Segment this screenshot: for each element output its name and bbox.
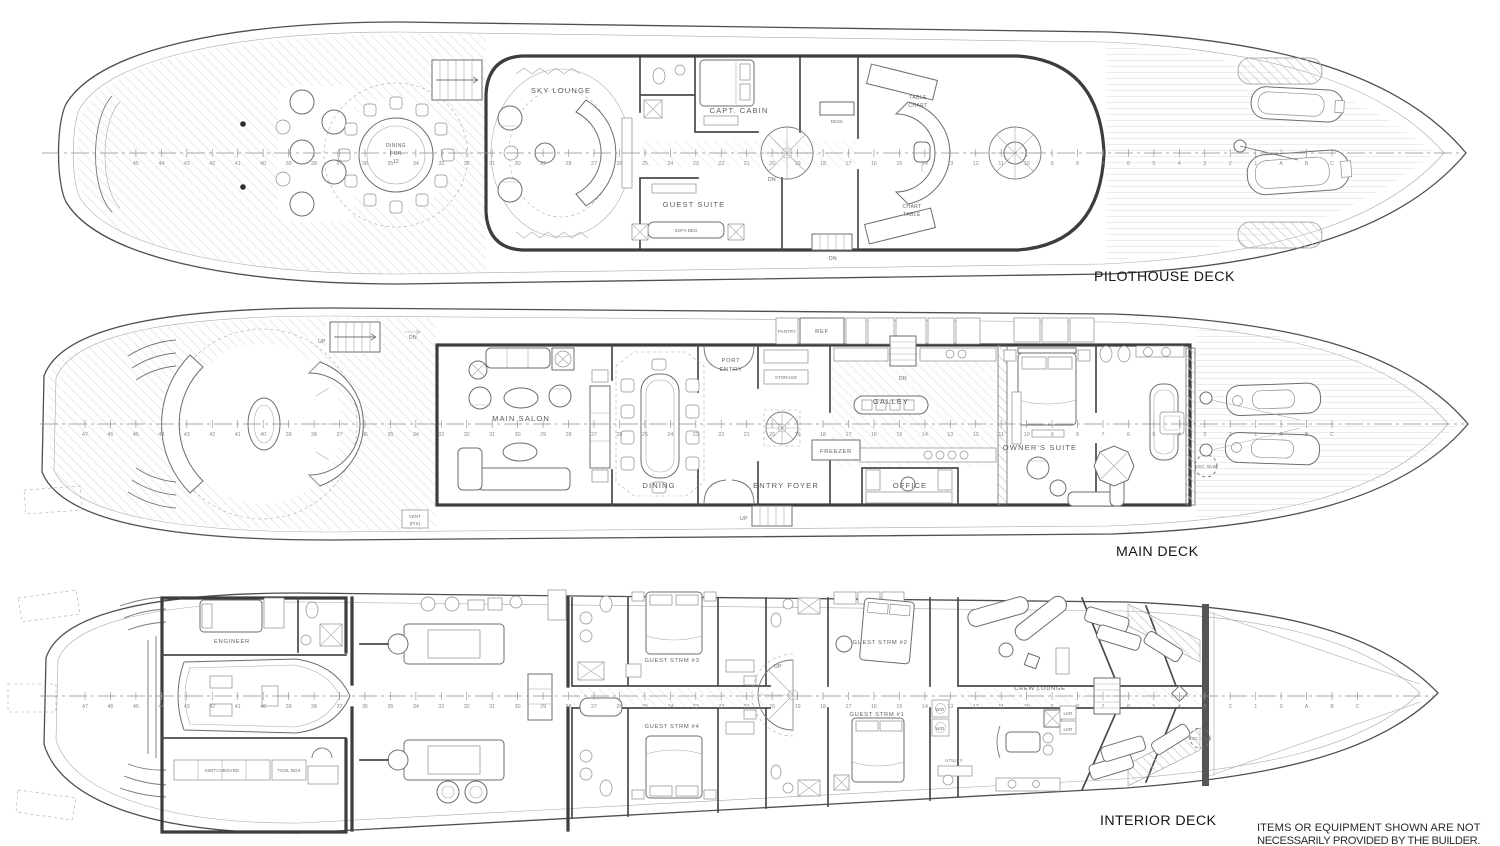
sunpad-starboard bbox=[1238, 222, 1322, 248]
svg-text:22: 22 bbox=[718, 161, 724, 167]
svg-text:27: 27 bbox=[591, 432, 597, 438]
svg-text:2: 2 bbox=[1229, 704, 1232, 710]
label-sofa-bed: SOFA BED bbox=[675, 228, 698, 233]
svg-text:28: 28 bbox=[566, 704, 572, 710]
svg-text:9: 9 bbox=[1051, 432, 1054, 438]
svg-text:0: 0 bbox=[1280, 704, 1283, 710]
svg-text:14: 14 bbox=[922, 432, 928, 438]
svg-text:1: 1 bbox=[1254, 704, 1257, 710]
room-label-dining12: 12 bbox=[393, 159, 399, 165]
room-label-port-entry: ENTRY bbox=[719, 367, 742, 373]
builder-disclaimer-line1: ITEMS OR EQUIPMENT SHOWN ARE NOT bbox=[1257, 822, 1481, 834]
svg-text:19: 19 bbox=[795, 432, 801, 438]
svg-text:38: 38 bbox=[311, 704, 317, 710]
svg-text:11: 11 bbox=[998, 432, 1004, 438]
room-label-crew-lounge: CREW LOUNGE bbox=[1014, 686, 1066, 692]
room-label-main-salon: MAIN SALON bbox=[492, 414, 550, 423]
svg-text:13: 13 bbox=[947, 161, 953, 167]
svg-text:34: 34 bbox=[413, 161, 419, 167]
svg-text:9: 9 bbox=[1051, 704, 1054, 710]
svg-text:47: 47 bbox=[82, 704, 88, 710]
svg-text:13: 13 bbox=[947, 432, 953, 438]
svg-text:41: 41 bbox=[235, 432, 241, 438]
svg-text:45: 45 bbox=[133, 432, 139, 438]
svg-text:30: 30 bbox=[515, 704, 521, 710]
svg-text:38: 38 bbox=[311, 161, 317, 167]
svg-text:23: 23 bbox=[693, 704, 699, 710]
svg-text:39: 39 bbox=[286, 161, 292, 167]
room-label-capt-cabin: CAPT. CABIN bbox=[710, 106, 769, 115]
label-lkr: LKR bbox=[1064, 727, 1073, 732]
svg-text:B: B bbox=[1330, 704, 1334, 710]
svg-text:6: 6 bbox=[1127, 432, 1130, 438]
svg-text:39: 39 bbox=[286, 432, 292, 438]
svg-text:29: 29 bbox=[540, 161, 546, 167]
svg-text:16: 16 bbox=[871, 432, 877, 438]
svg-text:43: 43 bbox=[184, 161, 190, 167]
label-dn: DN bbox=[899, 376, 907, 382]
room-label-galley: GALLEY bbox=[873, 397, 909, 406]
room-label-entry-foyer: ENTRY FOYER bbox=[753, 481, 819, 490]
svg-text:26: 26 bbox=[616, 704, 622, 710]
room-label-sky-lounge: SKY LOUNGE bbox=[531, 86, 591, 95]
svg-text:21: 21 bbox=[744, 704, 750, 710]
svg-text:42: 42 bbox=[209, 704, 215, 710]
svg-text:23: 23 bbox=[693, 161, 699, 167]
deck-title-main: MAIN DECK bbox=[1116, 544, 1199, 560]
svg-text:7: 7 bbox=[1102, 161, 1105, 167]
svg-text:12: 12 bbox=[973, 704, 979, 710]
label-esc-blw: ESC. BLW bbox=[1195, 464, 1218, 469]
label-lkr: LKR bbox=[1064, 711, 1073, 716]
label-dn: DN bbox=[829, 256, 837, 262]
svg-text:36: 36 bbox=[362, 161, 368, 167]
label-chart-table: TABLE bbox=[903, 212, 921, 218]
svg-text:8: 8 bbox=[1076, 704, 1079, 710]
svg-text:A: A bbox=[1279, 161, 1283, 167]
svg-text:33: 33 bbox=[438, 161, 444, 167]
svg-text:15: 15 bbox=[896, 432, 902, 438]
svg-text:13: 13 bbox=[947, 704, 953, 710]
room-label-office: OFFICE bbox=[893, 481, 927, 490]
svg-text:34: 34 bbox=[413, 704, 419, 710]
label-vent: VENT bbox=[409, 514, 421, 519]
svg-text:32: 32 bbox=[464, 161, 470, 167]
label-vent: (P/S) bbox=[410, 521, 421, 526]
svg-text:37: 37 bbox=[337, 704, 343, 710]
svg-text:20: 20 bbox=[769, 704, 775, 710]
svg-text:8: 8 bbox=[1076, 161, 1079, 167]
svg-text:14: 14 bbox=[922, 161, 928, 167]
svg-text:44: 44 bbox=[158, 161, 164, 167]
svg-text:11: 11 bbox=[998, 161, 1004, 167]
svg-text:23: 23 bbox=[693, 432, 699, 438]
interior-deck-plan: 4746454443424140393837363534333231302928… bbox=[8, 590, 1438, 833]
label-pantry: PANTRY bbox=[778, 329, 796, 334]
svg-text:2: 2 bbox=[1229, 161, 1232, 167]
svg-text:1: 1 bbox=[1254, 432, 1257, 438]
svg-text:36: 36 bbox=[362, 704, 368, 710]
jet-ski bbox=[1226, 383, 1321, 416]
svg-text:12: 12 bbox=[973, 161, 979, 167]
svg-text:16: 16 bbox=[871, 161, 877, 167]
svg-text:37: 37 bbox=[337, 432, 343, 438]
label-dn: DN bbox=[409, 335, 417, 341]
svg-text:27: 27 bbox=[591, 161, 597, 167]
svg-text:7: 7 bbox=[1102, 704, 1105, 710]
label-wd: W/D bbox=[936, 707, 945, 712]
svg-text:44: 44 bbox=[158, 704, 164, 710]
label-wd: W/D bbox=[936, 726, 945, 731]
svg-text:3: 3 bbox=[1203, 161, 1206, 167]
svg-text:24: 24 bbox=[667, 432, 673, 438]
svg-text:41: 41 bbox=[235, 704, 241, 710]
svg-text:18: 18 bbox=[820, 161, 826, 167]
svg-text:45: 45 bbox=[133, 704, 139, 710]
room-label-guest-strm-4: GUEST STRM #4 bbox=[644, 724, 699, 730]
svg-text:12: 12 bbox=[973, 432, 979, 438]
svg-text:1: 1 bbox=[1254, 161, 1257, 167]
room-label-engineer: ENGINEER bbox=[214, 639, 250, 645]
svg-text:10: 10 bbox=[1024, 432, 1030, 438]
svg-text:5: 5 bbox=[1152, 161, 1155, 167]
svg-text:34: 34 bbox=[413, 432, 419, 438]
svg-text:5: 5 bbox=[1152, 704, 1155, 710]
svg-text:31: 31 bbox=[489, 432, 495, 438]
svg-text:26: 26 bbox=[616, 161, 622, 167]
label-tool-box: TOOL BOX bbox=[277, 768, 300, 773]
svg-text:8: 8 bbox=[1076, 432, 1079, 438]
svg-text:42: 42 bbox=[209, 432, 215, 438]
svg-text:18: 18 bbox=[820, 704, 826, 710]
svg-text:11: 11 bbox=[998, 704, 1004, 710]
svg-text:40: 40 bbox=[260, 704, 266, 710]
svg-text:40: 40 bbox=[260, 161, 266, 167]
label-utility: UTILITY bbox=[945, 758, 962, 763]
svg-text:30: 30 bbox=[515, 432, 521, 438]
svg-text:3: 3 bbox=[1203, 704, 1206, 710]
svg-text:10: 10 bbox=[1024, 161, 1030, 167]
room-label-guest-strm-3: GUEST STRM #3 bbox=[644, 658, 699, 664]
label-up: UP bbox=[740, 516, 748, 522]
svg-text:25: 25 bbox=[642, 161, 648, 167]
svg-text:B: B bbox=[1305, 161, 1309, 167]
svg-text:25: 25 bbox=[642, 432, 648, 438]
svg-text:27: 27 bbox=[591, 704, 597, 710]
room-label-guest-strm-2: GUEST STRM #2 bbox=[852, 640, 907, 646]
forward-bulkhead bbox=[1202, 604, 1209, 786]
svg-text:17: 17 bbox=[846, 161, 852, 167]
svg-text:39: 39 bbox=[286, 704, 292, 710]
svg-text:19: 19 bbox=[795, 161, 801, 167]
svg-text:31: 31 bbox=[489, 161, 495, 167]
svg-text:40: 40 bbox=[260, 432, 266, 438]
svg-text:30: 30 bbox=[515, 161, 521, 167]
svg-text:24: 24 bbox=[667, 161, 673, 167]
yacht-deck-plans-canvas: 4544434241403938373635343332313029282726… bbox=[0, 0, 1500, 846]
label-up: UP bbox=[318, 339, 326, 345]
svg-text:C: C bbox=[1356, 704, 1360, 710]
svg-text:35: 35 bbox=[387, 704, 393, 710]
svg-text:42: 42 bbox=[209, 161, 215, 167]
svg-text:33: 33 bbox=[438, 704, 444, 710]
main-deck-plan: 4746454443424140393837363534333231302928… bbox=[24, 308, 1468, 560]
svg-text:28: 28 bbox=[566, 432, 572, 438]
svg-text:45: 45 bbox=[133, 161, 139, 167]
svg-text:46: 46 bbox=[107, 432, 113, 438]
svg-text:47: 47 bbox=[82, 432, 88, 438]
svg-text:A: A bbox=[1305, 704, 1309, 710]
svg-text:33: 33 bbox=[438, 432, 444, 438]
label-esc-ovr: ESC. OVR bbox=[1189, 736, 1211, 741]
deck-title-pilothouse: PILOTHOUSE DECK bbox=[1094, 269, 1235, 285]
svg-text:9: 9 bbox=[1051, 161, 1054, 167]
svg-text:16: 16 bbox=[871, 704, 877, 710]
svg-text:21: 21 bbox=[744, 161, 750, 167]
svg-text:4: 4 bbox=[1178, 161, 1181, 167]
svg-text:15: 15 bbox=[896, 161, 902, 167]
svg-text:19: 19 bbox=[795, 704, 801, 710]
svg-text:44: 44 bbox=[158, 432, 164, 438]
svg-text:32: 32 bbox=[464, 432, 470, 438]
aft-stairs bbox=[432, 60, 482, 100]
label-switchboard: SWITCHBOARD bbox=[205, 768, 239, 773]
svg-text:32: 32 bbox=[464, 704, 470, 710]
svg-text:C: C bbox=[1330, 161, 1334, 167]
pilothouse-deck-plan: 4544434241403938373635343332313029282726… bbox=[42, 22, 1466, 285]
svg-text:A: A bbox=[1279, 432, 1283, 438]
desk bbox=[820, 102, 854, 115]
label-dn: DN bbox=[768, 177, 776, 183]
label-ref: REF bbox=[815, 329, 829, 335]
svg-text:7: 7 bbox=[1102, 432, 1105, 438]
svg-text:41: 41 bbox=[235, 161, 241, 167]
svg-text:24: 24 bbox=[667, 704, 673, 710]
svg-text:17: 17 bbox=[846, 432, 852, 438]
svg-text:36: 36 bbox=[362, 432, 368, 438]
label-desk: DESK bbox=[831, 119, 844, 124]
room-label-dining: DINING bbox=[642, 481, 675, 490]
label-table-chart: CHART bbox=[908, 103, 927, 109]
svg-text:2: 2 bbox=[1229, 432, 1232, 438]
svg-text:5: 5 bbox=[1152, 432, 1155, 438]
svg-text:43: 43 bbox=[184, 704, 190, 710]
svg-text:22: 22 bbox=[718, 704, 724, 710]
builder-disclaimer-line2: NECESSARILY PROVIDED BY THE BUILDER. bbox=[1257, 835, 1481, 846]
room-label-guest-strm-1: GUEST STRM #1 bbox=[849, 712, 904, 718]
svg-text:17: 17 bbox=[846, 704, 852, 710]
rescue-tender bbox=[1246, 149, 1353, 196]
svg-text:4: 4 bbox=[1178, 432, 1181, 438]
room-label-dining12: FOR bbox=[390, 151, 402, 157]
room-label-port-entry: PORT bbox=[722, 358, 741, 364]
svg-text:38: 38 bbox=[311, 432, 317, 438]
svg-text:6: 6 bbox=[1127, 704, 1130, 710]
room-label-dining12: DINING bbox=[386, 143, 406, 149]
svg-text:46: 46 bbox=[107, 704, 113, 710]
svg-text:22: 22 bbox=[718, 432, 724, 438]
svg-text:35: 35 bbox=[387, 432, 393, 438]
svg-text:15: 15 bbox=[896, 704, 902, 710]
svg-text:10: 10 bbox=[1024, 704, 1030, 710]
svg-text:37: 37 bbox=[337, 161, 343, 167]
svg-text:20: 20 bbox=[769, 161, 775, 167]
svg-text:C: C bbox=[1330, 432, 1334, 438]
svg-text:29: 29 bbox=[540, 432, 546, 438]
forward-stairs bbox=[812, 234, 852, 250]
svg-text:26: 26 bbox=[616, 432, 622, 438]
room-label-guest-suite: GUEST SUITE bbox=[663, 200, 726, 209]
svg-text:14: 14 bbox=[922, 704, 928, 710]
svg-text:31: 31 bbox=[489, 704, 495, 710]
tender-boat bbox=[1250, 86, 1345, 123]
svg-text:29: 29 bbox=[540, 704, 546, 710]
deck-title-interior: INTERIOR DECK bbox=[1100, 813, 1216, 829]
label-chart-table: CHART bbox=[902, 204, 921, 210]
room-label-owners-suite: OWNER'S SUITE bbox=[1003, 443, 1077, 452]
svg-text:28: 28 bbox=[566, 161, 572, 167]
svg-text:B: B bbox=[1305, 432, 1309, 438]
label-table-chart: TABLE bbox=[909, 95, 927, 101]
svg-text:21: 21 bbox=[744, 432, 750, 438]
svg-text:43: 43 bbox=[184, 432, 190, 438]
svg-text:20: 20 bbox=[769, 432, 775, 438]
svg-text:25: 25 bbox=[642, 704, 648, 710]
sunpad-port bbox=[1238, 58, 1322, 84]
svg-text:3: 3 bbox=[1203, 432, 1206, 438]
label-freezer: FREEZER bbox=[820, 449, 852, 455]
label-storage: STORAGE bbox=[775, 375, 797, 380]
svg-text:6: 6 bbox=[1127, 161, 1130, 167]
svg-text:4: 4 bbox=[1178, 704, 1181, 710]
label-up: UP bbox=[774, 664, 782, 670]
svg-text:18: 18 bbox=[820, 432, 826, 438]
